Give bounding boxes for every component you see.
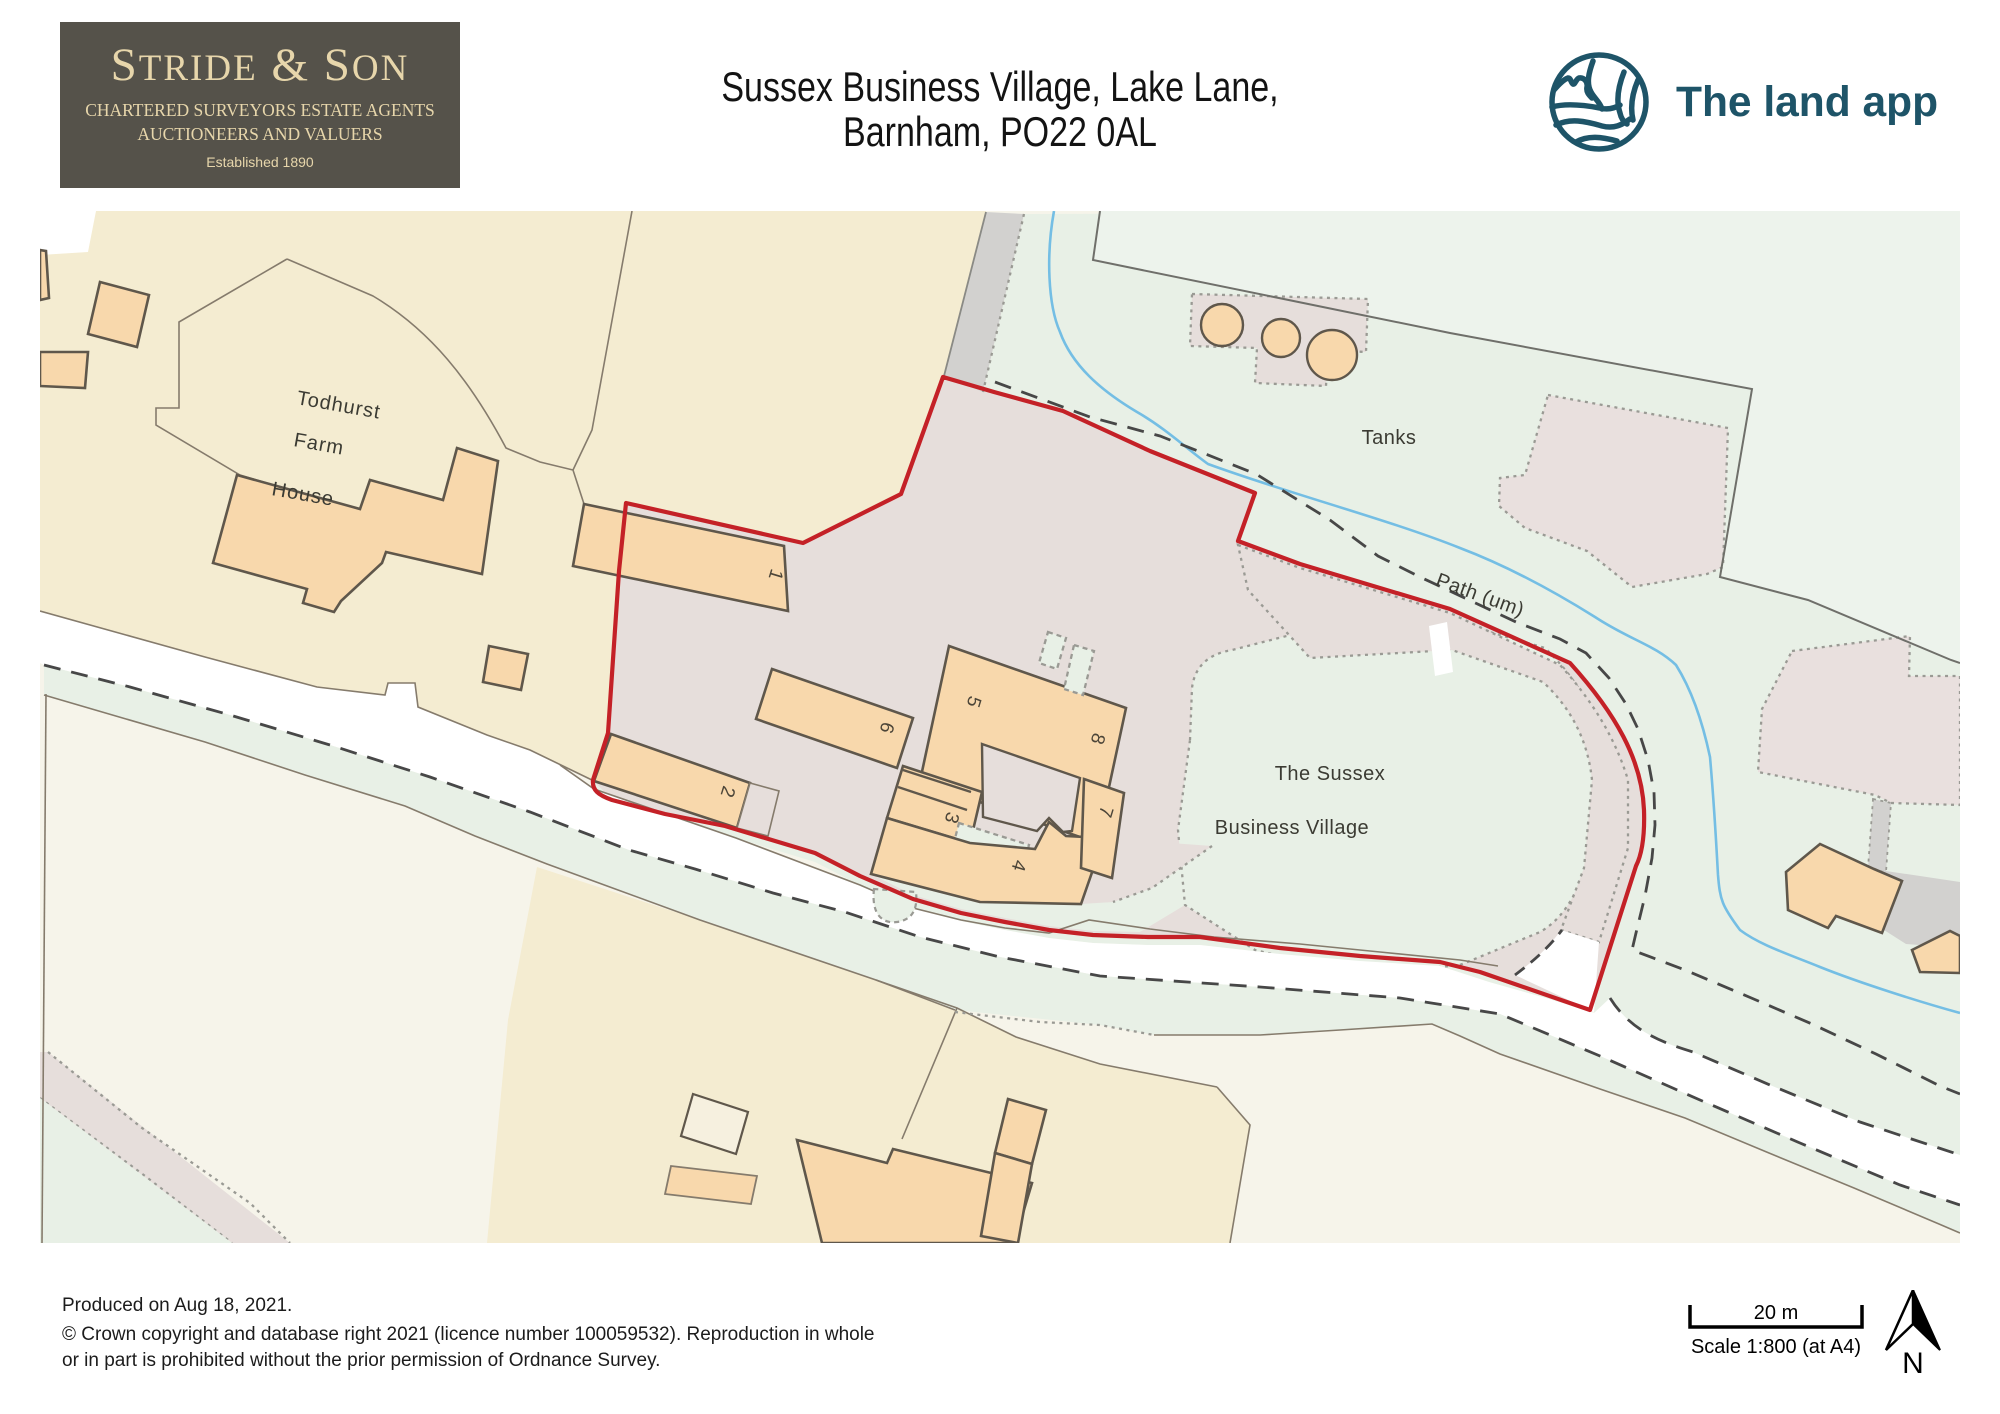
svg-text:20 m: 20 m <box>1754 1302 1798 1324</box>
svg-text:The Sussex: The Sussex <box>1275 763 1386 785</box>
svg-text:The land app: The land app <box>1676 79 1938 126</box>
svg-text:Scale 1:800 (at A4): Scale 1:800 (at A4) <box>1691 1336 1861 1358</box>
svg-text:Tanks: Tanks <box>1362 427 1417 449</box>
svg-text:N: N <box>1902 1347 1924 1380</box>
svg-text:Business Village: Business Village <box>1215 817 1369 839</box>
